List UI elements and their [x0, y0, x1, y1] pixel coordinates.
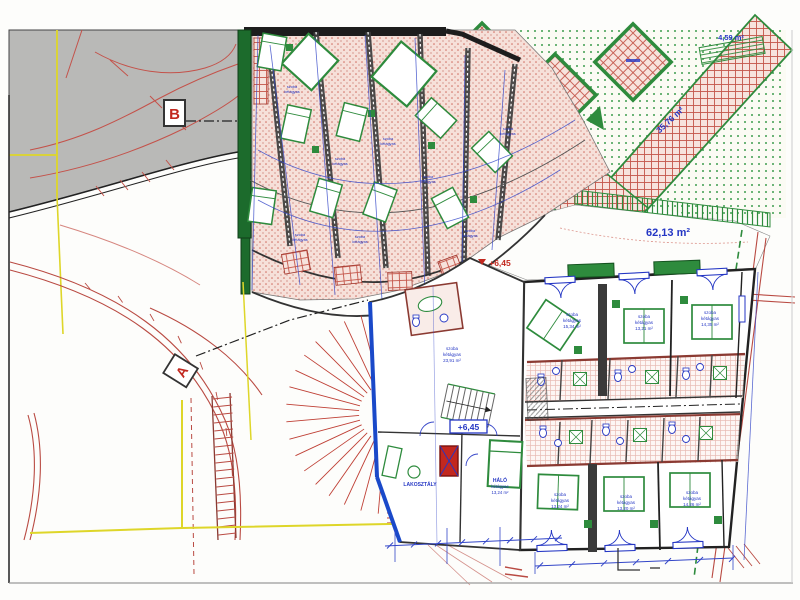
- svg-text:szoba: szoba: [355, 235, 366, 239]
- svg-text:15,34 m²: 15,34 m²: [563, 324, 581, 329]
- svg-text:kétágyas: kétágyas: [683, 496, 702, 501]
- svg-text:kétágyas: kétágyas: [551, 498, 570, 503]
- suite-label: LAKOSZTÁLY: [403, 481, 437, 488]
- svg-text:kétágyas: kétágyas: [420, 180, 435, 184]
- floor-plan-sheet: 4,59 m² 35,76 m² 62,13 m²: [0, 0, 800, 600]
- svg-text:szoba: szoba: [638, 314, 651, 319]
- area-label-path-small: 4,59 m²: [718, 33, 744, 42]
- svg-text:szoba: szoba: [423, 175, 434, 179]
- svg-text:kétágyas: kétágyas: [462, 234, 477, 238]
- planter-box: [654, 260, 700, 275]
- svg-text:kétágyas: kétágyas: [617, 500, 636, 505]
- wing-building: szobakétágyas15,34 m² szobakétágyas13,21…: [520, 260, 758, 560]
- svg-text:+6,45: +6,45: [489, 258, 511, 268]
- svg-text:13,24 m²: 13,24 m²: [551, 504, 569, 509]
- svg-text:szoba: szoba: [503, 127, 514, 131]
- svg-text:szoba: szoba: [704, 310, 717, 315]
- svg-text:szoba: szoba: [465, 229, 476, 233]
- svg-text:kétágyas: kétágyas: [563, 318, 582, 323]
- stair-hatch: [526, 378, 548, 421]
- planter-box: [568, 263, 614, 278]
- svg-text:szoba: szoba: [686, 490, 699, 495]
- halo-label: HÁLÓ: [493, 476, 507, 484]
- svg-text:kétágyas: kétágyas: [491, 484, 508, 489]
- svg-text:+6,45: +6,45: [458, 422, 480, 432]
- area-label-terrace: 62,13 m²: [646, 227, 690, 239]
- site-plan-drawing: 4,59 m² 35,76 m² 62,13 m²: [0, 0, 800, 600]
- svg-text:szoba: szoba: [287, 85, 298, 89]
- svg-text:kétágyas: kétágyas: [701, 316, 720, 321]
- svg-text:kétágyas: kétágyas: [635, 320, 654, 325]
- svg-text:kétágyas: kétágyas: [332, 162, 347, 166]
- svg-text:kétágyas: kétágyas: [292, 238, 307, 242]
- svg-text:kétágyas: kétágyas: [443, 352, 462, 357]
- svg-text:14,26 m²: 14,26 m²: [683, 502, 701, 507]
- svg-text:kétágyas: kétágyas: [352, 240, 367, 244]
- svg-text:szoba: szoba: [446, 346, 459, 351]
- central-building: szoba kétágyas 23,91 m² LAKOSZTÁLY HÁLÓ …: [370, 258, 548, 550]
- svg-text:13,24 m²: 13,24 m²: [492, 490, 510, 495]
- svg-text:szoba: szoba: [335, 157, 346, 161]
- svg-text:13,20 m²: 13,20 m²: [617, 506, 635, 511]
- marker-b-letter: B: [169, 106, 180, 123]
- svg-text:szoba: szoba: [620, 494, 633, 499]
- svg-text:szoba: szoba: [566, 312, 579, 317]
- svg-text:13,21 m²: 13,21 m²: [635, 326, 653, 331]
- svg-text:kétágyas: kétágyas: [500, 132, 515, 136]
- svg-text:szoba: szoba: [383, 137, 394, 141]
- svg-text:23,91 m²: 23,91 m²: [443, 358, 461, 363]
- svg-text:szoba: szoba: [295, 233, 306, 237]
- svg-text:14,35 m²: 14,35 m²: [701, 322, 719, 327]
- elevation-marker-lower: +6,45: [450, 420, 487, 433]
- svg-text:szoba: szoba: [554, 492, 567, 497]
- svg-text:kétágyas: kétágyas: [284, 90, 299, 94]
- svg-text:kétágyas: kétágyas: [380, 142, 395, 146]
